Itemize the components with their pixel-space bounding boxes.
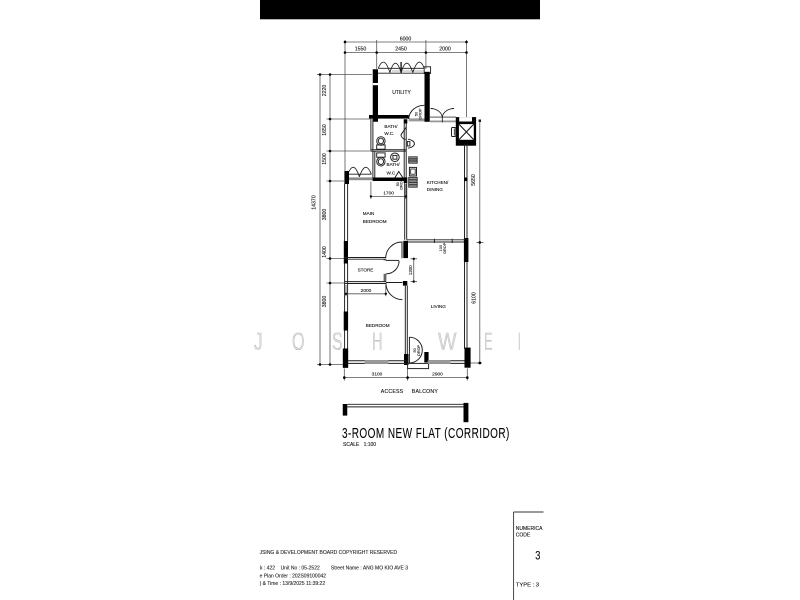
svg-text:2220: 2220 [322,85,328,97]
svg-text:1700: 1700 [383,191,394,197]
svg-text:1200: 1200 [408,265,413,275]
svg-text:I: I [518,328,521,356]
svg-text:H: H [372,328,383,356]
svg-text:3800: 3800 [322,209,328,221]
svg-text:1650: 1650 [322,124,328,136]
svg-text:CODE: CODE [516,533,531,539]
svg-text:BATH/: BATH/ [387,162,401,167]
svg-text:5650: 5650 [471,174,477,186]
svg-text:2900: 2900 [432,371,443,377]
svg-text:J: J [254,328,263,356]
svg-text:3-ROOM NEW FLAT (CORRIDOR): 3-ROOM NEW FLAT (CORRIDOR) [342,425,510,441]
svg-text:BEDROOM: BEDROOM [363,219,387,224]
svg-text:k : 422 Unit No : 05-2522: k : 422 Unit No : 05-2522 Street Name : … [260,566,408,572]
svg-text:e Plan Order : 202S09100042: e Plan Order : 202S09100042 [260,574,327,580]
svg-text:W.C.: W.C. [384,131,394,136]
svg-text:3100: 3100 [372,371,383,377]
svg-text:W.C: W.C [387,170,396,175]
svg-text:KITCHEN/: KITCHEN/ [427,180,449,185]
svg-text:2000: 2000 [439,47,451,53]
svg-text:DINING: DINING [427,187,444,192]
svg-text:ACCESS: ACCESS [381,389,404,395]
svg-text:14370: 14370 [312,195,318,210]
svg-text:DROP: DROP [443,242,447,253]
svg-text:DROP: DROP [417,344,421,355]
svg-text:TYPE : 3: TYPE : 3 [516,583,539,589]
svg-text:1500: 1500 [322,153,328,165]
svg-text:BATH/: BATH/ [384,124,398,129]
svg-text:2450: 2450 [395,47,407,53]
svg-text:6100: 6100 [472,292,478,304]
svg-text:3800: 3800 [322,296,328,308]
svg-text:SCALE 1:100: SCALE 1:100 [343,442,376,448]
svg-text:W: W [438,328,457,356]
svg-text:1550: 1550 [355,47,367,53]
svg-text:LIVING: LIVING [431,304,446,309]
svg-text:JSING & DEVELOPMENT BOARD COP: JSING & DEVELOPMENT BOARD COPYRIGHT RESE… [260,550,398,556]
svg-text:) & Time : 13/9/2025 11:39:22: ) & Time : 13/9/2025 11:39:22 [260,581,326,587]
svg-text:E: E [484,328,493,356]
svg-text:6000: 6000 [400,37,412,43]
svg-text:2000: 2000 [361,288,372,294]
svg-text:MAIN: MAIN [363,211,374,216]
svg-text:BALCONY: BALCONY [412,389,439,395]
svg-text:STORE: STORE [358,268,374,273]
svg-text:3: 3 [535,549,540,563]
svg-text:S: S [332,328,343,356]
svg-text:UTILITY: UTILITY [392,90,411,96]
svg-text:1400: 1400 [322,246,328,258]
svg-text:DROP: DROP [418,108,422,119]
svg-text:O: O [292,328,305,356]
svg-text:NUMERICA: NUMERICA [516,526,543,532]
